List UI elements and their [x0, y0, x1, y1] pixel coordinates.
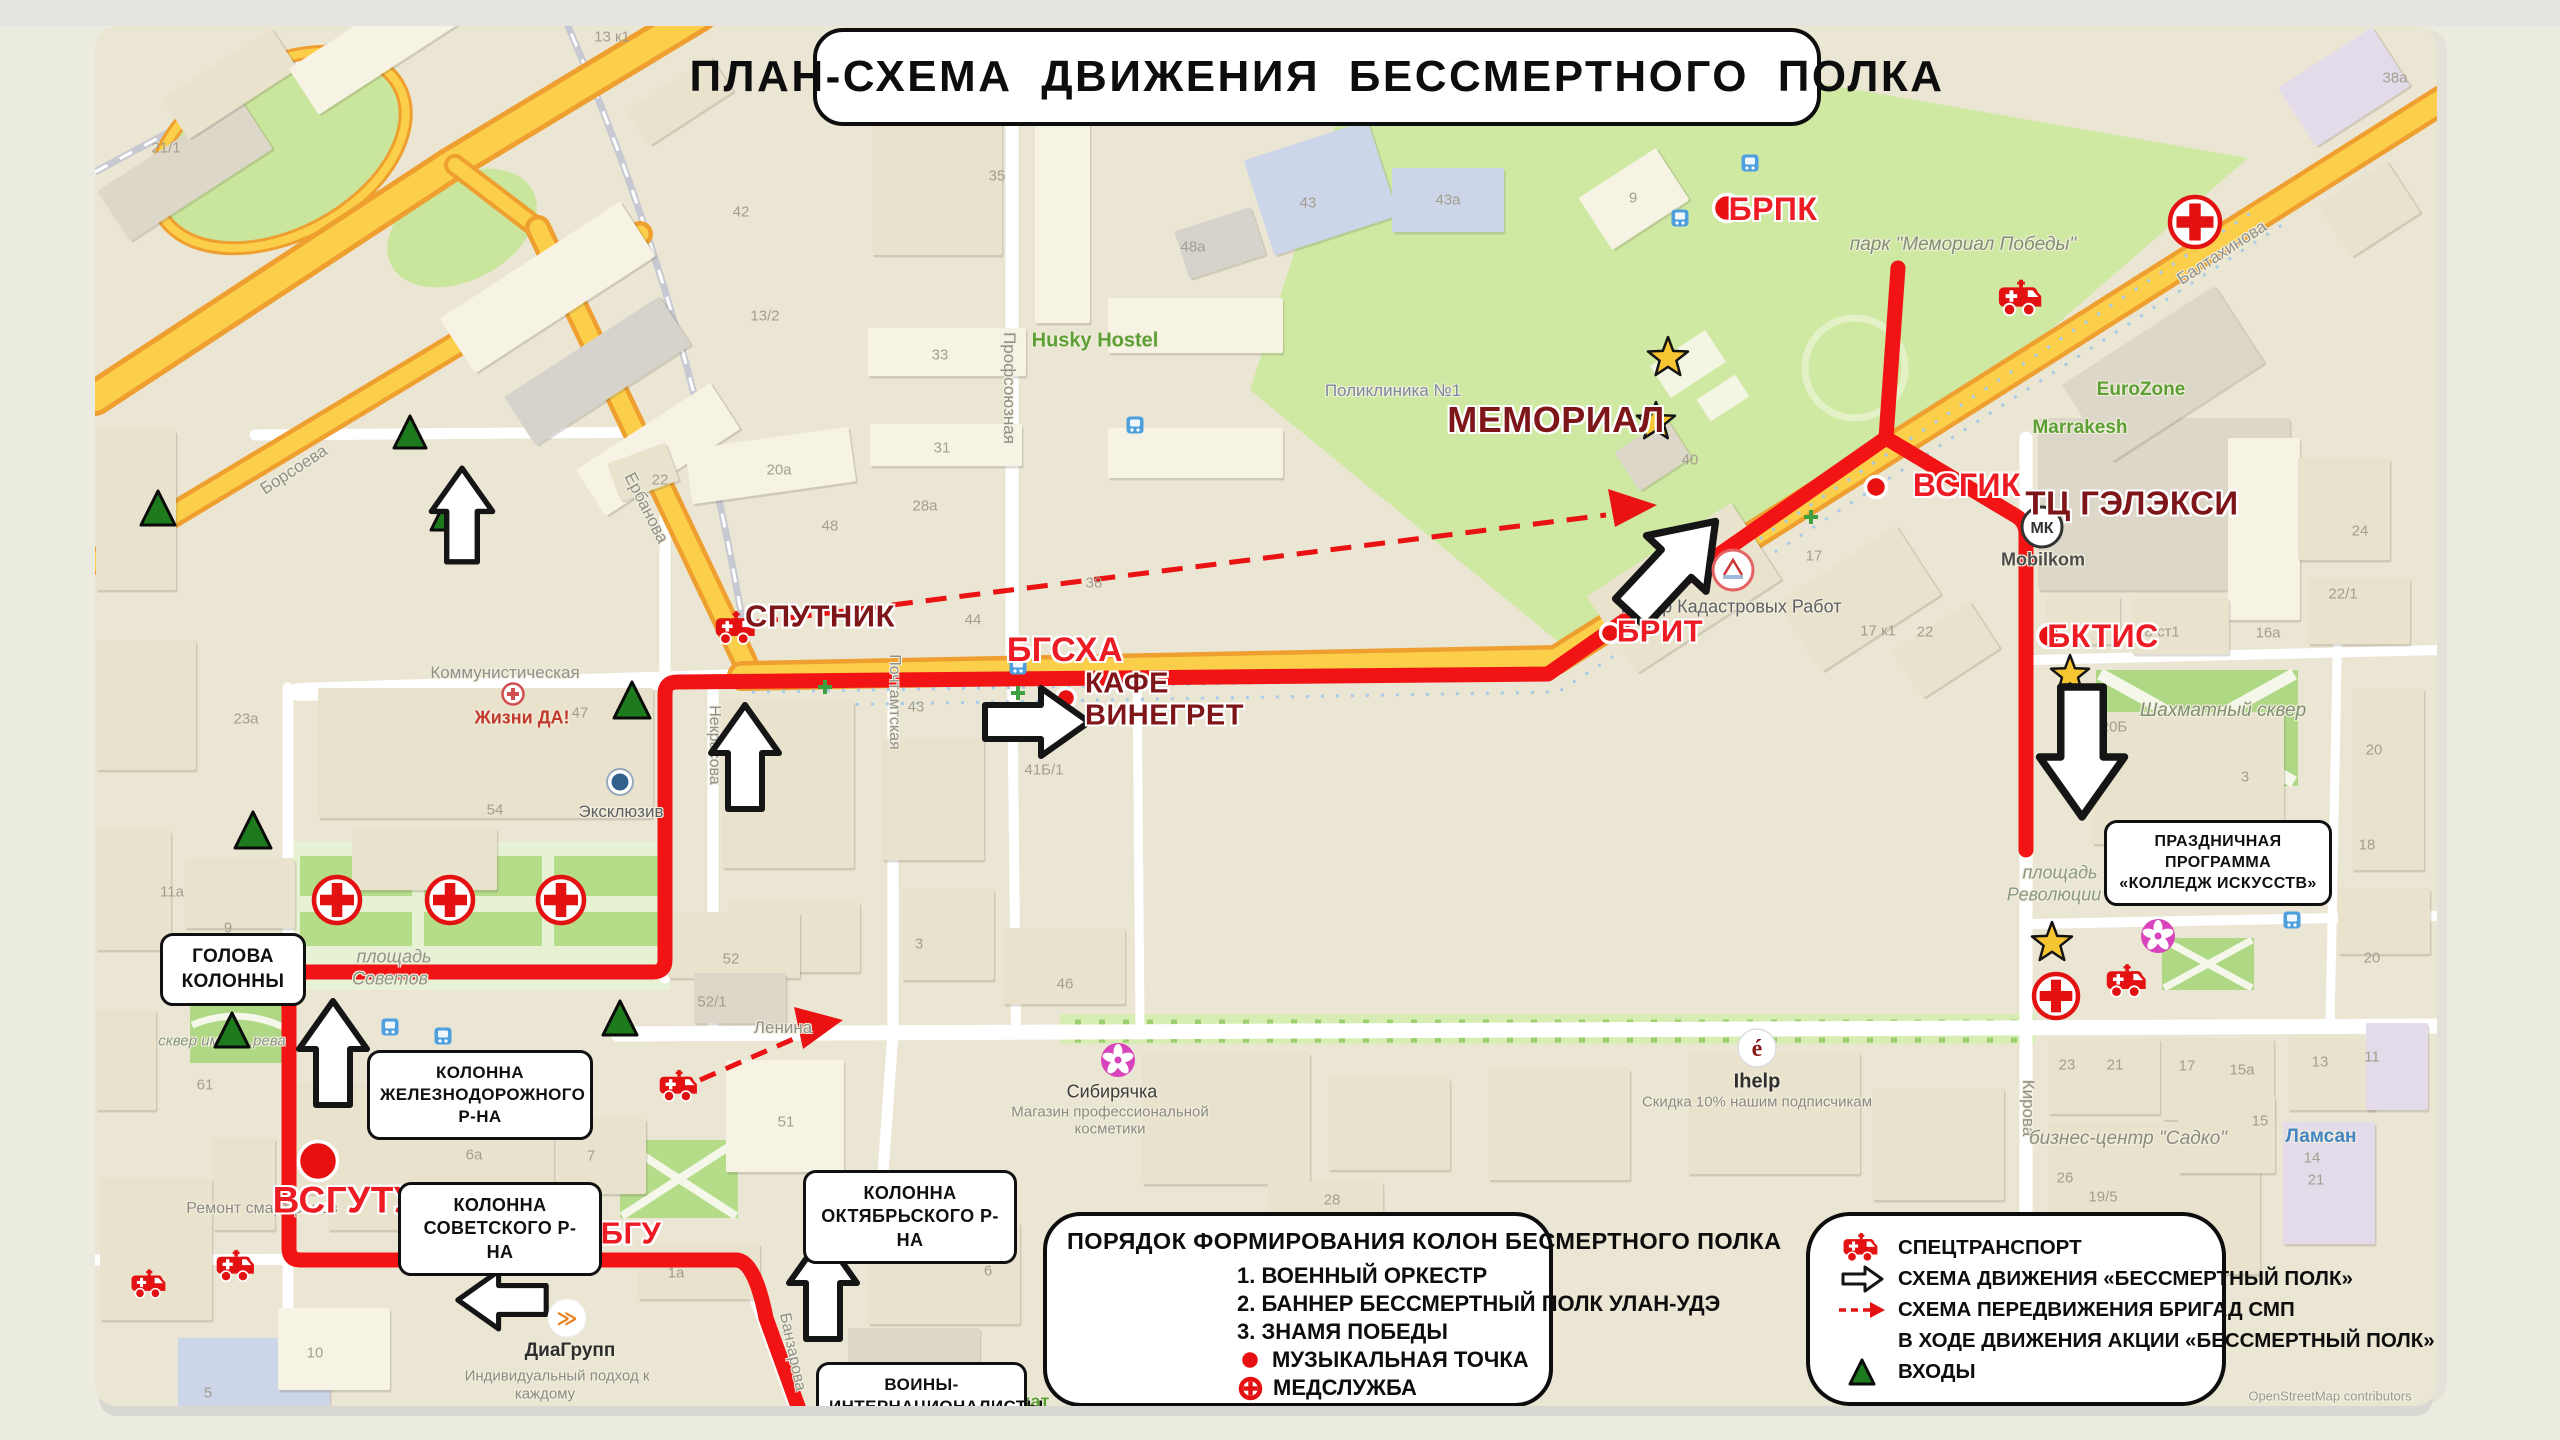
- legend-formation-item: МЕДСЛУЖБА: [1237, 1374, 1529, 1402]
- top-strip: [0, 0, 2560, 26]
- legend-formation-label: 1. ВОЕННЫЙ ОРКЕСТР: [1237, 1262, 1487, 1290]
- legend-formation-title: ПОРЯДОК ФОРМИРОВАНИЯ КОЛОН БЕСМЕРТНОГО П…: [1067, 1228, 1529, 1255]
- legend-formation-item: 3. ЗНАМЯ ПОБЕДЫ: [1237, 1318, 1529, 1346]
- legend-formation-item: 2. БАННЕР БЕССМЕРТНЫЙ ПОЛК УЛАН-УДЭ: [1237, 1290, 1529, 1318]
- legend-symbols-label: СХЕМА ДВИЖЕНИЯ «БЕССМЕРТНЫЙ ПОЛК»: [1898, 1263, 2353, 1294]
- legend-symbols-label: СПЕЦТРАНСПОРТ: [1898, 1232, 2082, 1263]
- plan-schema-screenshot: 13 к121/13548a4343a42333120a2213/228a482…: [0, 0, 2560, 1440]
- amb-icon: [1836, 1232, 1888, 1263]
- legend-formation-item: 1. ВОЕННЫЙ ОРКЕСТР: [1237, 1262, 1529, 1290]
- route-line-revolution-branch: [1886, 438, 2026, 850]
- legend-symbols-item: ВХОДЫ: [1836, 1356, 2206, 1387]
- legend-symbols-item: СПЕЦТРАНСПОРТ: [1836, 1232, 2206, 1263]
- legend-formation-label: МЕДСЛУЖБА: [1273, 1374, 1417, 1402]
- legend-formation-label: МУЗЫКАЛЬНАЯ ТОЧКА: [1272, 1346, 1529, 1374]
- legend-symbols-item: СХЕМА ПЕРЕДВИЖЕНИЯ БРИГАД СМП: [1836, 1294, 2206, 1325]
- warrow-icon: [1836, 1264, 1888, 1294]
- med-service-icon: [1237, 1375, 1264, 1402]
- route-line-memorial-branch: [1886, 268, 1898, 438]
- route-graphics: [95, 26, 2437, 1406]
- legend-symbols-label: ВХОДЫ: [1898, 1356, 1976, 1387]
- tri-icon: [1836, 1357, 1888, 1387]
- legend-symbols-item: В ХОДЕ ДВИЖЕНИЯ АКЦИИ «БЕССМЕРТНЫЙ ПОЛК»: [1836, 1325, 2206, 1356]
- smp-dashed-route: [700, 489, 1657, 1080]
- legend-formation-label: 3. ЗНАМЯ ПОБЕДЫ: [1237, 1318, 1448, 1346]
- legend-formation-item: МУЗЫКАЛЬНАЯ ТОЧКА: [1237, 1346, 1529, 1374]
- legend-formation-box: ПОРЯДОК ФОРМИРОВАНИЯ КОЛОН БЕСМЕРТНОГО П…: [1043, 1212, 1553, 1406]
- legend-symbols-label: СХЕМА ПЕРЕДВИЖЕНИЯ БРИГАД СМП: [1898, 1294, 2295, 1325]
- title-banner: ПЛАН-СХЕМА ДВИЖЕНИЯ БЕССМЕРТНОГО ПОЛКА: [813, 28, 1821, 126]
- map-canvas[interactable]: 13 к121/13548a4343a42333120a2213/228a482…: [95, 26, 2437, 1406]
- dasharrow-icon: [1836, 1301, 1888, 1319]
- legend-formation-label: 2. БАННЕР БЕССМЕРТНЫЙ ПОЛК УЛАН-УДЭ: [1237, 1290, 1720, 1318]
- legend-symbols-item: СХЕМА ДВИЖЕНИЯ «БЕССМЕРТНЫЙ ПОЛК»: [1836, 1263, 2206, 1294]
- legend-symbols-box: СПЕЦТРАНСПОРТСХЕМА ДВИЖЕНИЯ «БЕССМЕРТНЫЙ…: [1806, 1212, 2226, 1406]
- legend-symbols-label: В ХОДЕ ДВИЖЕНИЯ АКЦИИ «БЕССМЕРТНЫЙ ПОЛК»: [1898, 1325, 2435, 1356]
- musical-point-icon: [1237, 1347, 1263, 1373]
- page-title: ПЛАН-СХЕМА ДВИЖЕНИЯ БЕССМЕРТНОГО ПОЛКА: [690, 52, 1945, 102]
